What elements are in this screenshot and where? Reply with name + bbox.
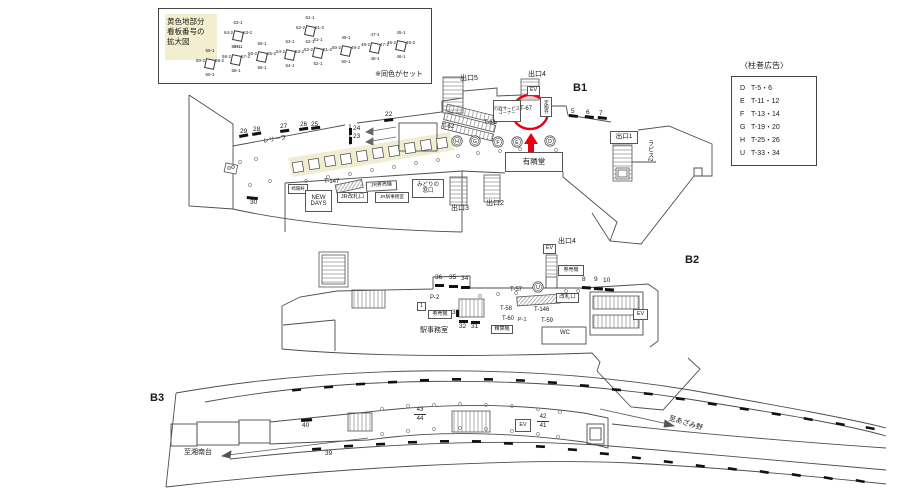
floor-label-b2: B2 <box>685 254 699 266</box>
label-exit-1: 出口1 <box>610 131 638 144</box>
floor-label-b1: B1 <box>573 82 587 94</box>
svg-text:E: E <box>515 140 519 146</box>
legend-icon-51-52: 51-151-2 52-152-2 <box>303 37 333 67</box>
sign-26: 26 <box>300 121 307 128</box>
sign-8: 8 <box>582 276 586 283</box>
sign-33: 33 <box>452 309 459 316</box>
sign-10: 10 <box>603 277 610 284</box>
label-station-office-b2: 駅事務室 <box>420 327 448 335</box>
sign-29: 29 <box>240 128 247 135</box>
jr-ticket-machine-box: JR券売機 <box>366 180 397 192</box>
sign-9: 9 <box>594 276 598 283</box>
sign-32: 32 <box>459 323 466 330</box>
label-t60: T-60 <box>502 316 514 323</box>
legend-icon-49-50: 49-149-2 50-150-2 <box>331 35 361 65</box>
sign-35: 35 <box>449 274 456 281</box>
jr-station-office-box: JR駅事務室 <box>375 192 409 203</box>
legend-icon-55-56: 55-155-2 56-156-2 <box>247 41 277 71</box>
legend-icon-45-46: 45-145-2 46-146-2 <box>386 30 416 60</box>
sign-28: 28 <box>253 126 260 133</box>
station-floor-plan: H G F E D U B1 B2 B3 出口5 出口4 EV 行政サービス コ… <box>0 0 919 491</box>
svg-text:G: G <box>473 139 477 145</box>
pillar-U-icon: U <box>533 282 543 292</box>
pillar-ads-row: GT-19・20 <box>740 122 780 132</box>
label-p1: P-1 <box>518 317 527 323</box>
pillar-G-icon: G <box>470 136 480 146</box>
sign-27: 27 <box>280 123 287 130</box>
label-t61: T-61 <box>484 120 496 127</box>
legend-icon-53-54: 53-153-2 54-154-2 <box>275 39 305 69</box>
stairs <box>319 77 639 432</box>
subway-gate-box: 改札口 <box>556 293 579 303</box>
sign-6: 6 <box>586 109 590 116</box>
pillar-ads-title: 〈柱巻広告〉 <box>740 62 788 71</box>
elevator-box-b1: EV <box>527 86 540 96</box>
pillar-H-icon: H <box>452 136 462 146</box>
sign-43-44: 4344 <box>413 407 427 423</box>
sign-42-41: 4241 <box>536 414 550 430</box>
sign-22: 22 <box>385 111 392 118</box>
sign-1-box: 1 <box>417 302 426 311</box>
sign-30: 30 <box>250 199 257 206</box>
sign-5: 5 <box>571 108 575 115</box>
plan-drawing: H G F E D U <box>0 0 919 491</box>
elevator-box-b2-upper: EV <box>543 244 556 254</box>
sign-34: 34 <box>461 275 468 282</box>
sign-43: 43 <box>417 407 424 413</box>
label-exit-2: 出口2 <box>486 200 504 208</box>
pillar-F-icon: F <box>493 137 503 147</box>
svg-text:H: H <box>455 139 459 145</box>
label-exit-4-b2: 出口4 <box>558 238 576 246</box>
label-t146: T-146 <box>534 307 549 314</box>
legend-note: ※同色がセット <box>375 69 423 79</box>
sign-44: 44 <box>417 416 424 422</box>
sign-39: 39 <box>325 450 332 457</box>
pillar-ads-row: HT-25・26 <box>740 135 780 145</box>
sign-23: 23 <box>353 133 360 140</box>
pillar-ads-row: FT-13・14 <box>740 109 780 119</box>
floor-label-b3: B3 <box>150 392 164 404</box>
label-to-shonandai: 至湘南台 <box>184 449 212 457</box>
label-t58: T-58 <box>500 306 512 313</box>
label-exit-5: 出口5 <box>460 75 478 83</box>
commuter-pass-box: 定期券 <box>540 97 552 117</box>
svg-text:U: U <box>536 285 540 291</box>
label-p2: P-2 <box>430 295 439 302</box>
pillar-ads-row: UT-33・34 <box>740 148 780 158</box>
label-lapis-building: ラピス2 <box>646 140 653 174</box>
label-wc: WC <box>560 330 570 337</box>
label-t147: T-147 <box>324 179 339 186</box>
label-exit-4-b1: 出口4 <box>528 71 546 79</box>
signboard-legend-box: 黄色地部分 看板番号の 拡大図 ※同色がセット 63-163-2 64-164-… <box>158 8 432 84</box>
pillar-ads-box: DT-5・6 ET-11・12 FT-13・14 GT-19・20 HT-25・… <box>731 76 817 166</box>
sign-40: 40 <box>302 422 309 429</box>
yurindo-shop-box: 有隣堂 <box>505 152 563 172</box>
relief-object <box>224 163 238 174</box>
pillar-ads-row: ET-11・12 <box>740 96 779 106</box>
elevator-box-b3: EV <box>515 419 531 432</box>
admin-service-corner-box: 行政サービス コーナー <box>493 100 521 122</box>
ticket-machine-box-b2-left: 券売機 <box>428 310 452 319</box>
pillar-D-icon: D <box>545 136 555 146</box>
svg-text:D: D <box>548 139 552 145</box>
svg-text:F: F <box>496 140 499 146</box>
pillar-E-icon: E <box>512 137 522 147</box>
newdays-shop-box: NEW DAYS <box>305 190 332 212</box>
sign-42: 42 <box>540 414 547 420</box>
ticket-machine-box-b2-upper: 券売機 <box>558 265 584 276</box>
elevator-box-b2-right: EV <box>633 309 648 320</box>
label-exit-3: 出口3 <box>451 205 469 213</box>
sign-41: 41 <box>540 423 547 429</box>
sign-24: 24 <box>353 125 360 132</box>
midori-no-madoguchi-box: みどりの 窓口 <box>412 179 444 198</box>
fare-adjustment-box: 精算機 <box>491 325 513 334</box>
pillar-ads-row: DT-5・6 <box>740 83 772 93</box>
sign-36: 36 <box>435 274 442 281</box>
sign-7: 7 <box>599 110 603 117</box>
jr-gate-box: JR改札口 <box>337 192 368 203</box>
label-t62: T-62 <box>442 124 454 131</box>
label-t67: T-67 <box>520 106 532 113</box>
label-t57: T-57 <box>510 287 522 294</box>
sign-31: 31 <box>471 323 478 330</box>
sign-25: 25 <box>311 121 318 128</box>
track-dashes <box>292 378 875 483</box>
label-t59: T-59 <box>541 318 553 325</box>
